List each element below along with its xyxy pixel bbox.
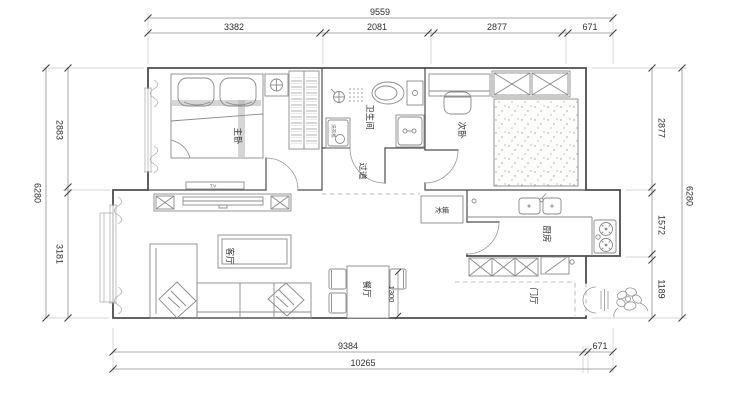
wardrobe <box>492 71 570 97</box>
room-label-entry: 门厅 <box>529 287 539 305</box>
bathroom: 洗衣机 卫生间 <box>326 81 424 148</box>
curtain-icon <box>114 287 122 314</box>
counter <box>467 217 592 256</box>
pillow <box>159 282 196 318</box>
entry-door-swing <box>583 287 608 313</box>
second-bedroom: 次卧 <box>429 71 578 186</box>
dim-top-seg1: 3382 <box>224 22 244 32</box>
dim-right-middle: 1572 <box>657 215 667 235</box>
dim-left-upper: 2883 <box>55 120 65 140</box>
living-room: 客厅 <box>150 194 311 318</box>
room-label-master-bedroom: 主卧 <box>233 127 243 145</box>
room-label-kitchen: 厨房 <box>542 225 552 242</box>
dimensions-bottom: 9384 671 10265 <box>110 328 617 373</box>
tv-bench-label: T.V <box>210 184 217 189</box>
dim-top-seg4: 671 <box>582 22 597 32</box>
doors <box>266 148 499 254</box>
master-bedroom-window <box>144 80 158 173</box>
chair <box>444 92 471 114</box>
room-label-living-room: 客厅 <box>225 247 235 265</box>
curtain-icon <box>150 80 158 107</box>
dim-dining-table: 1300 <box>387 286 396 303</box>
room-label-hallway: 过道 <box>358 162 368 180</box>
curtain-icon <box>114 197 122 224</box>
dimensions-right: 2877 1572 1189 6280 <box>592 65 695 322</box>
entry: 门厅 <box>455 257 648 317</box>
toilet-icon <box>372 81 423 105</box>
plant-icon <box>614 287 648 317</box>
dim-left-lower: 3181 <box>55 244 65 264</box>
bed <box>494 99 578 186</box>
room-label-bathroom: 卫生间 <box>365 104 375 130</box>
master-bedroom-door <box>266 158 298 190</box>
living-room-window <box>100 197 122 314</box>
dimensions-left: 6280 2883 3181 <box>33 65 144 322</box>
floor-plan-drawing: 9559 3382 2081 2877 671 9384 671 10265 <box>0 0 740 400</box>
dining-room: 1300 餐厅 <box>329 266 406 319</box>
dim-bottom-inner: 9384 <box>338 341 358 351</box>
fridge-label: 冰箱 <box>435 206 449 215</box>
washing-machine-label: 洗衣机 <box>330 124 337 138</box>
sink-icon <box>519 194 561 215</box>
hallway: 过道 <box>322 162 420 194</box>
dim-bottom-inner-right: 671 <box>592 341 607 351</box>
dim-top-overall: 9559 <box>370 7 390 17</box>
dim-bottom-overall: 10265 <box>350 358 375 368</box>
washing-machine: 洗衣机 <box>326 118 350 148</box>
room-label-dining-room: 餐厅 <box>362 280 372 298</box>
master-bedroom: T.V 主卧 <box>171 71 319 189</box>
dim-top-seg3: 2877 <box>487 22 507 32</box>
stove-icon <box>594 220 616 253</box>
dim-top-seg2: 2081 <box>367 22 387 32</box>
shower-icon <box>331 88 363 102</box>
pillow <box>268 283 304 316</box>
bed <box>171 74 263 158</box>
blanket-fold <box>171 140 190 158</box>
vanity-sink <box>396 115 424 147</box>
floor-plan-canvas: 9559 3382 2081 2877 671 9384 671 10265 <box>0 0 740 400</box>
dimensions-top: 9559 3382 2081 2877 671 <box>145 7 617 64</box>
curtain-icon <box>150 146 158 173</box>
dim-right-upper: 2877 <box>657 118 667 138</box>
kitchen-door <box>467 222 499 254</box>
room-label-second-bedroom: 次卧 <box>457 121 467 139</box>
desk <box>429 74 490 96</box>
dim-right-lower: 1189 <box>657 279 667 298</box>
kitchen: 冰箱 厨房 <box>421 194 616 257</box>
dim-left-overall: 6280 <box>33 183 43 203</box>
second-bedroom-door <box>425 150 458 183</box>
dim-right-overall: 6280 <box>685 186 695 206</box>
